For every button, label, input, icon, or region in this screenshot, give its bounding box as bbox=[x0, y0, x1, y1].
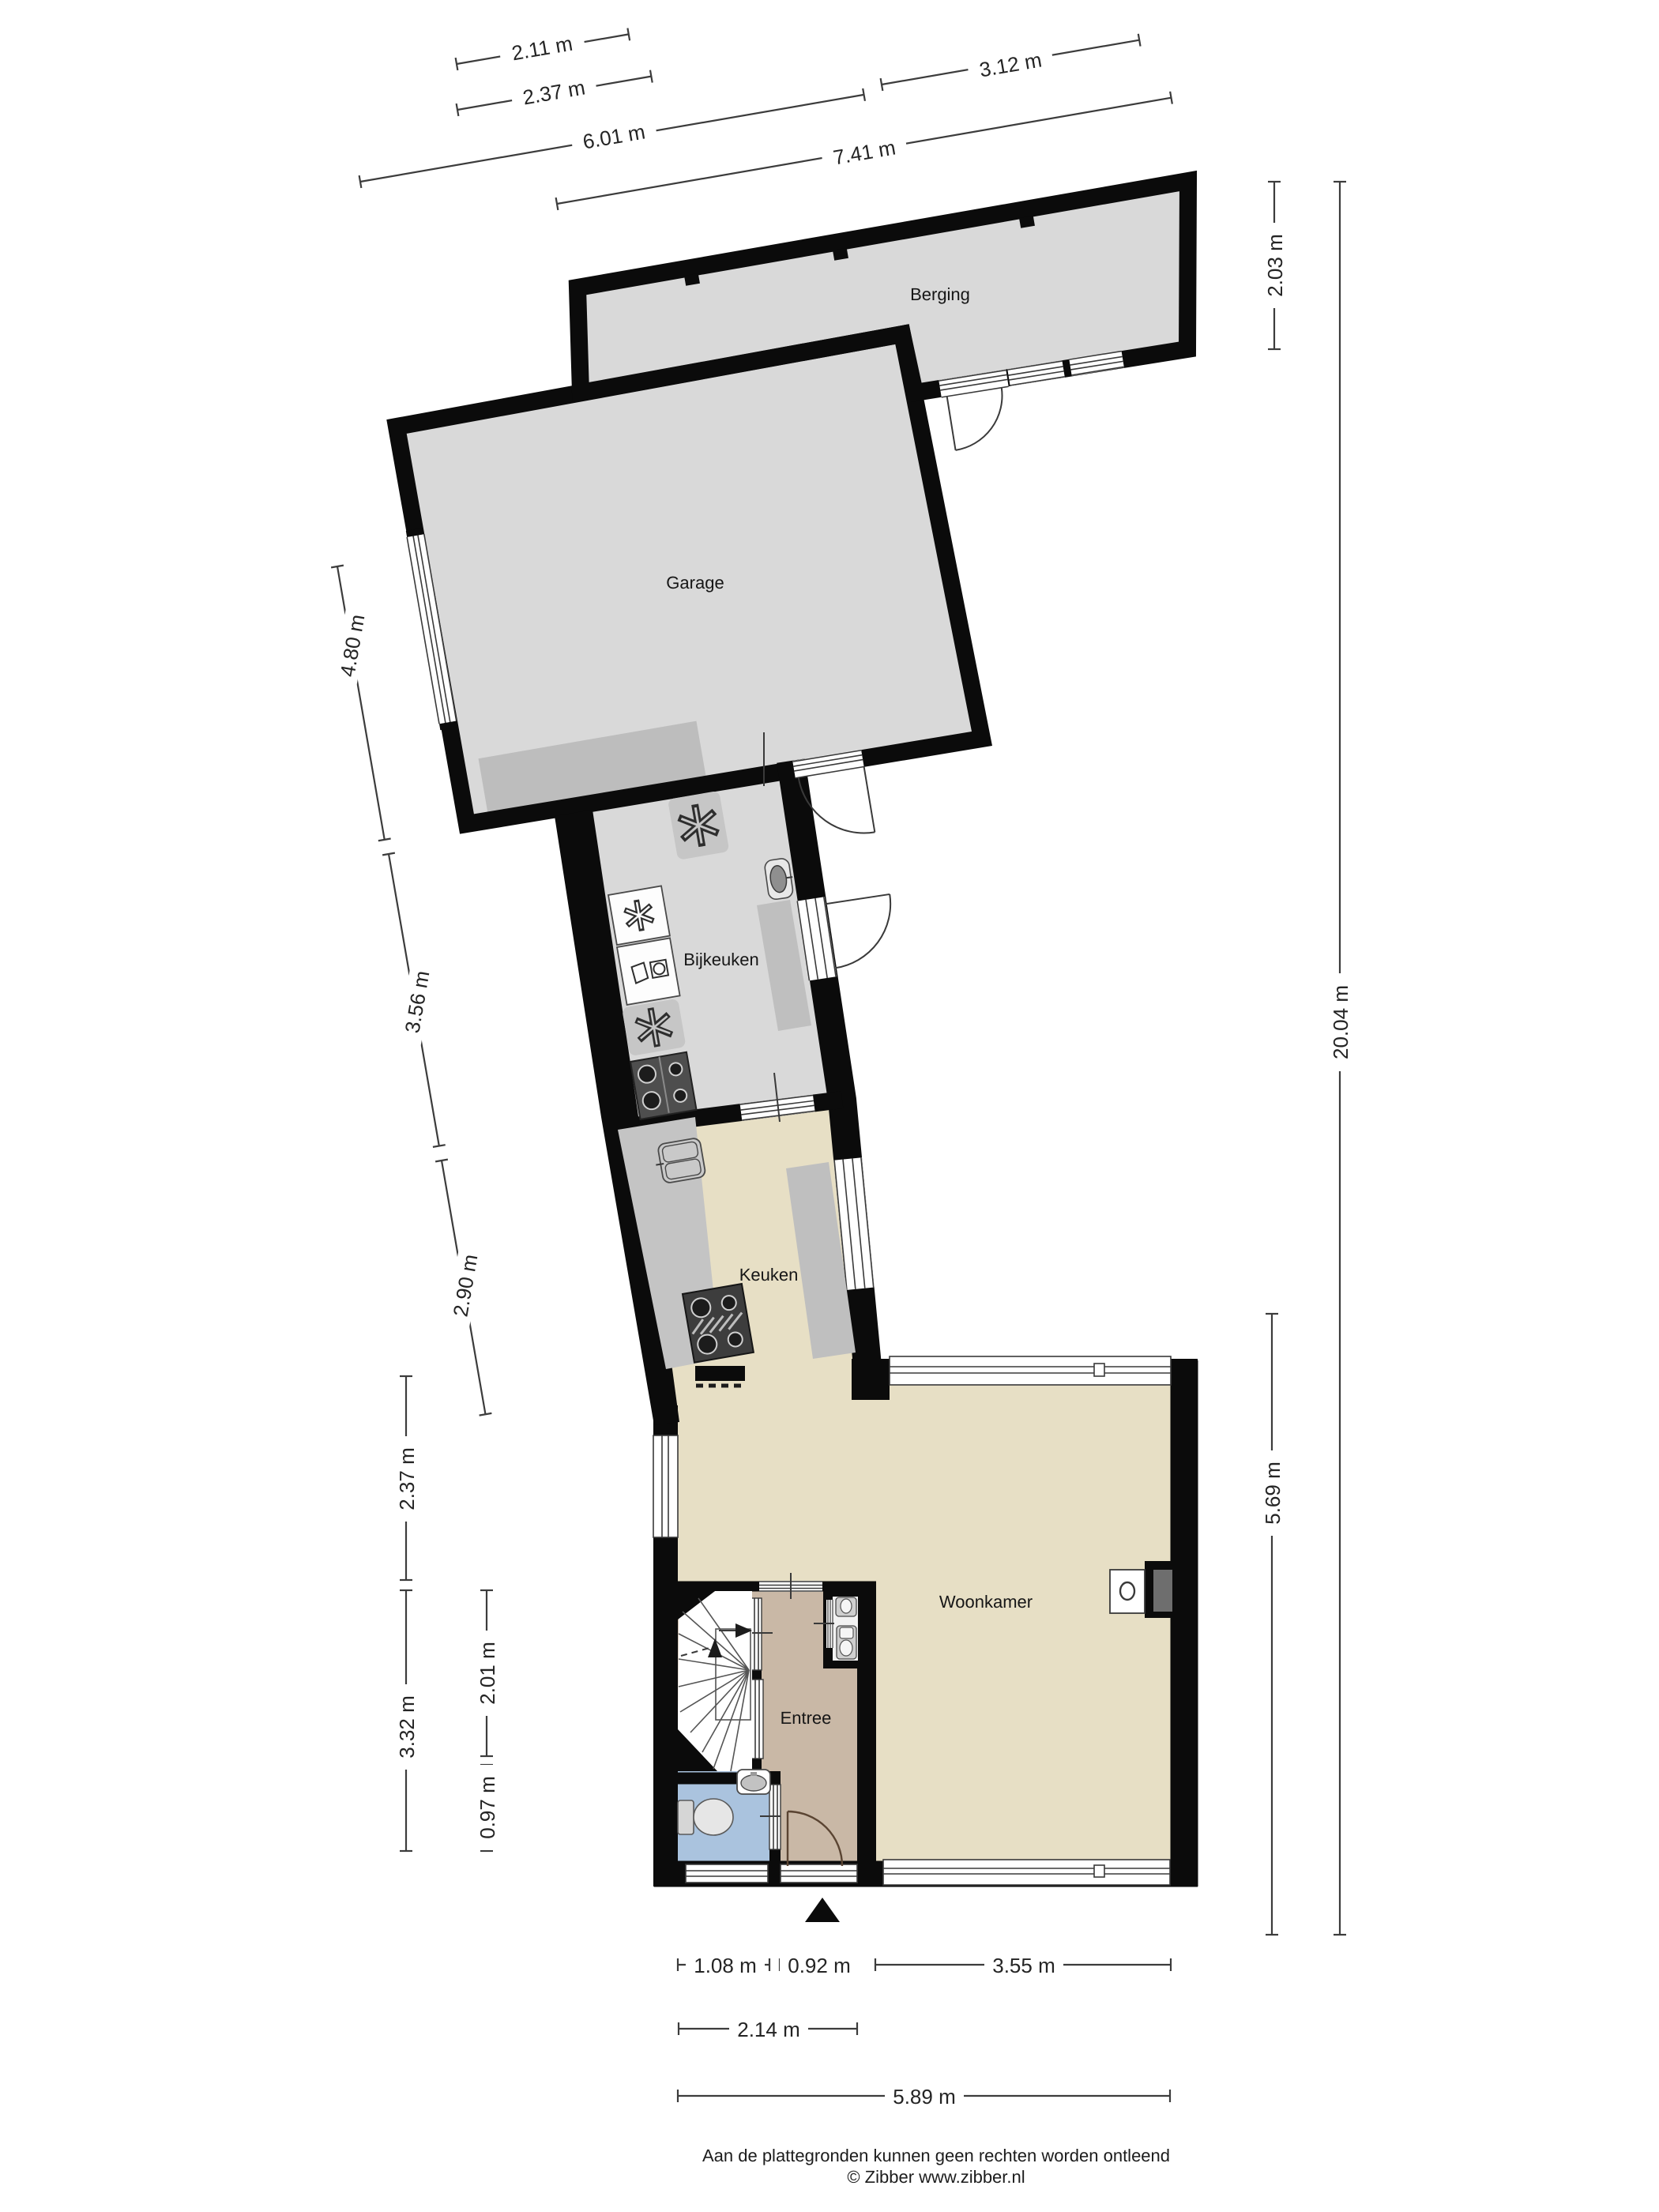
svg-text:2.01 m: 2.01 m bbox=[476, 1642, 499, 1705]
svg-text:Berging: Berging bbox=[910, 284, 970, 304]
svg-text:0.92 m: 0.92 m bbox=[788, 1954, 851, 1977]
svg-text:Bijkeuken: Bijkeuken bbox=[683, 950, 758, 969]
svg-text:2.14 m: 2.14 m bbox=[737, 2018, 800, 2041]
svg-text:© Zibber www.zibber.nl: © Zibber www.zibber.nl bbox=[847, 2167, 1025, 2187]
svg-text:0.97 m: 0.97 m bbox=[476, 1776, 499, 1839]
svg-text:Entree: Entree bbox=[781, 1708, 832, 1728]
svg-text:3.32 m: 3.32 m bbox=[395, 1695, 419, 1759]
svg-text:5.69 m: 5.69 m bbox=[1261, 1461, 1285, 1525]
svg-text:3.55 m: 3.55 m bbox=[992, 1954, 1055, 1977]
svg-text:Woonkamer: Woonkamer bbox=[939, 1592, 1033, 1612]
svg-text:2.03 m: 2.03 m bbox=[1263, 234, 1287, 297]
svg-text:1.08 m: 1.08 m bbox=[694, 1954, 757, 1977]
svg-text:Aan de plattegronden kunnen ge: Aan de plattegronden kunnen geen rechten… bbox=[702, 2146, 1170, 2165]
svg-text:20.04 m: 20.04 m bbox=[1329, 985, 1352, 1059]
svg-text:Keuken: Keuken bbox=[739, 1265, 799, 1285]
svg-text:5.89 m: 5.89 m bbox=[893, 2085, 956, 2109]
svg-text:2.37 m: 2.37 m bbox=[395, 1447, 419, 1510]
svg-text:Garage: Garage bbox=[666, 573, 724, 592]
